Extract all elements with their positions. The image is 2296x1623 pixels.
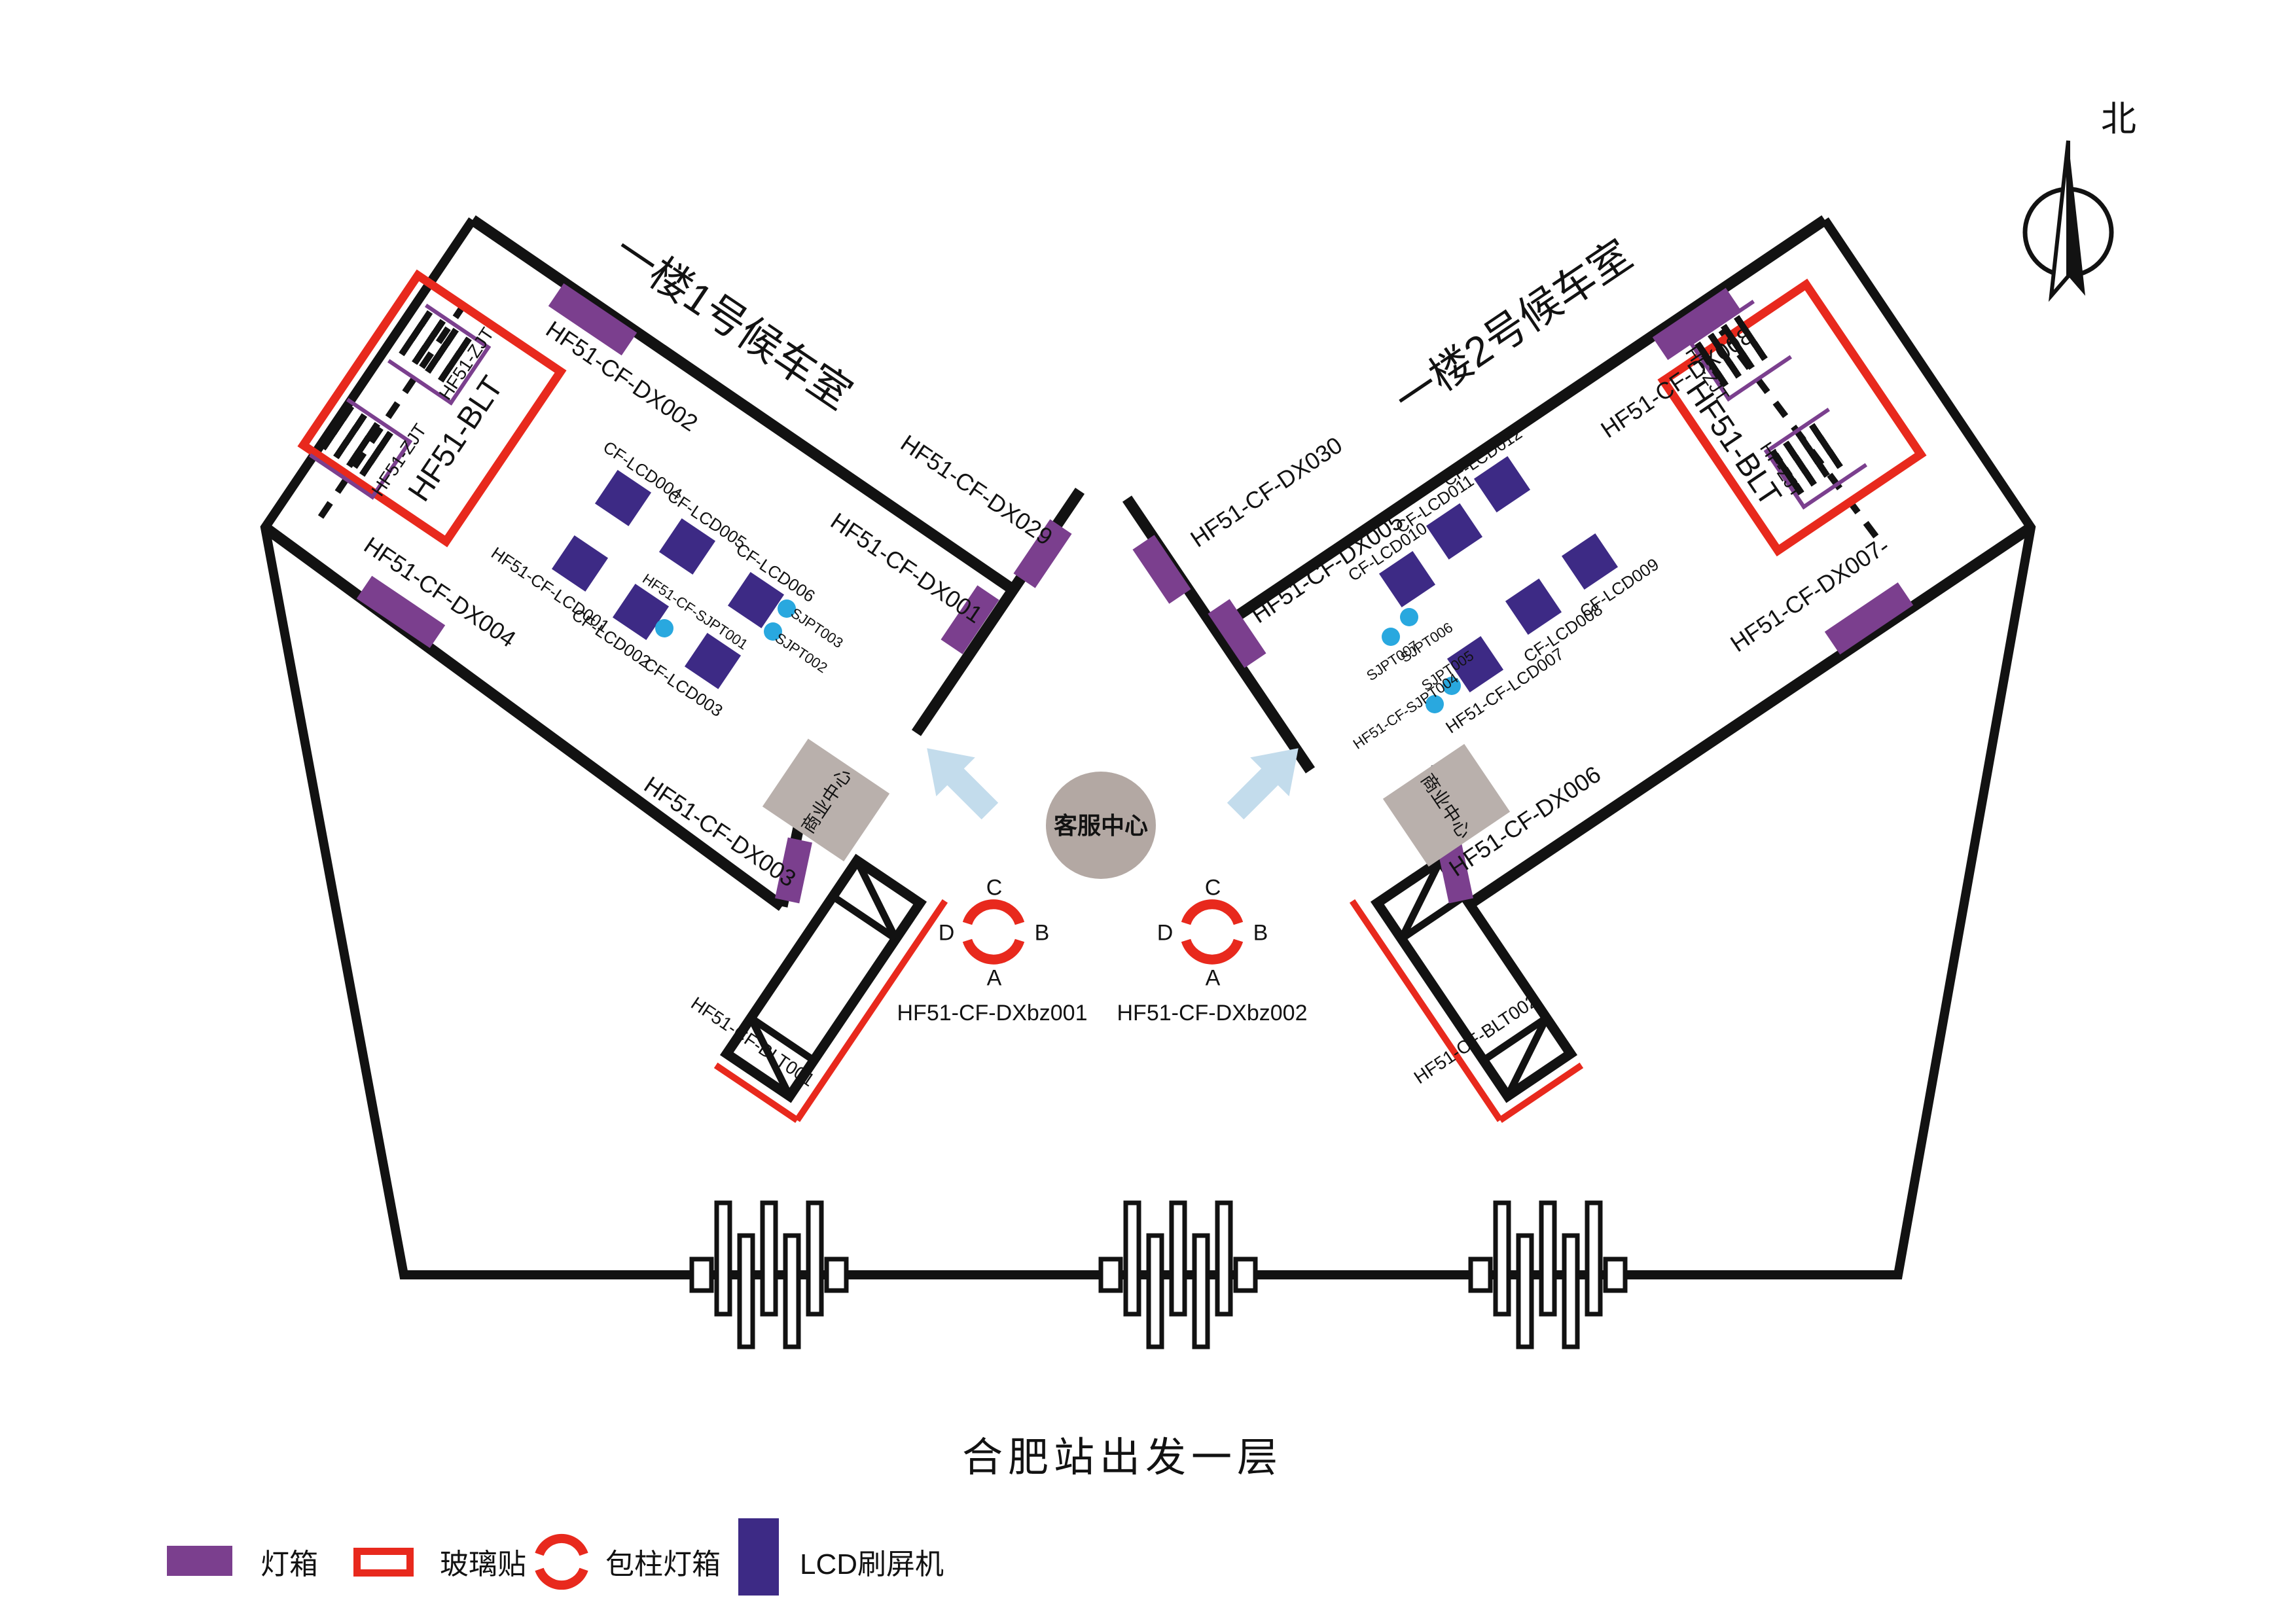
north-arrow-icon — [2025, 141, 2111, 296]
sjpt-sjpt007 — [1382, 628, 1400, 646]
legend-lcd-label: LCD刷屏机 — [800, 1541, 944, 1582]
left-shop-label: 商业中心 — [795, 762, 857, 838]
label-dxbz002: HF51-CF-DXbz002 — [1117, 1002, 1308, 1024]
right-shop-label: 商业中心 — [1415, 768, 1478, 843]
legend-lightbox-swatch — [167, 1546, 232, 1576]
ring2-dir-bottom: A — [1206, 966, 1221, 991]
ring2-dir-right: B — [1253, 921, 1268, 946]
legend-glass-swatch — [353, 1548, 414, 1577]
pillar-ring-2 — [1186, 904, 1238, 959]
legend-column-label: 包柱灯箱 — [605, 1541, 721, 1582]
pillar-ring-1 — [967, 904, 1020, 959]
sjpt-hf51-cf-sjpt001 — [655, 619, 673, 637]
entry-gates — [692, 1203, 1625, 1347]
ring1-dir-bottom: A — [987, 966, 1002, 991]
ring2-dir-top: C — [1205, 876, 1221, 901]
ring1-dir-left: D — [939, 921, 955, 946]
label-dxbz001: HF51-CF-DXbz001 — [897, 1002, 1088, 1024]
sjpt-sjpt006 — [1400, 608, 1418, 626]
legend-ring-icon — [539, 1539, 584, 1585]
flow-arrow-left — [908, 729, 1010, 831]
ring1-dir-top: C — [986, 876, 1003, 901]
legend-lightbox-label: 灯箱 — [260, 1541, 318, 1582]
ring2-dir-left: D — [1157, 921, 1174, 946]
legend-glass-label: 玻璃贴 — [440, 1541, 526, 1582]
floorplan-hefei-departure-level1: 商业中心 商业中心 一楼1号候车室 一楼2号候车室 HF51-CF-DX002 … — [0, 0, 2296, 1623]
north-label: 北 — [2101, 101, 2136, 137]
flow-arrow-right — [1216, 729, 1318, 831]
plan-linework — [0, 0, 2296, 1623]
ring1-dir-right: B — [1035, 921, 1050, 946]
page-title: 合肥站出发一层 — [962, 1438, 1283, 1478]
legend-lcd-swatch — [738, 1518, 779, 1596]
service-center-label: 客服中心 — [1054, 814, 1148, 838]
